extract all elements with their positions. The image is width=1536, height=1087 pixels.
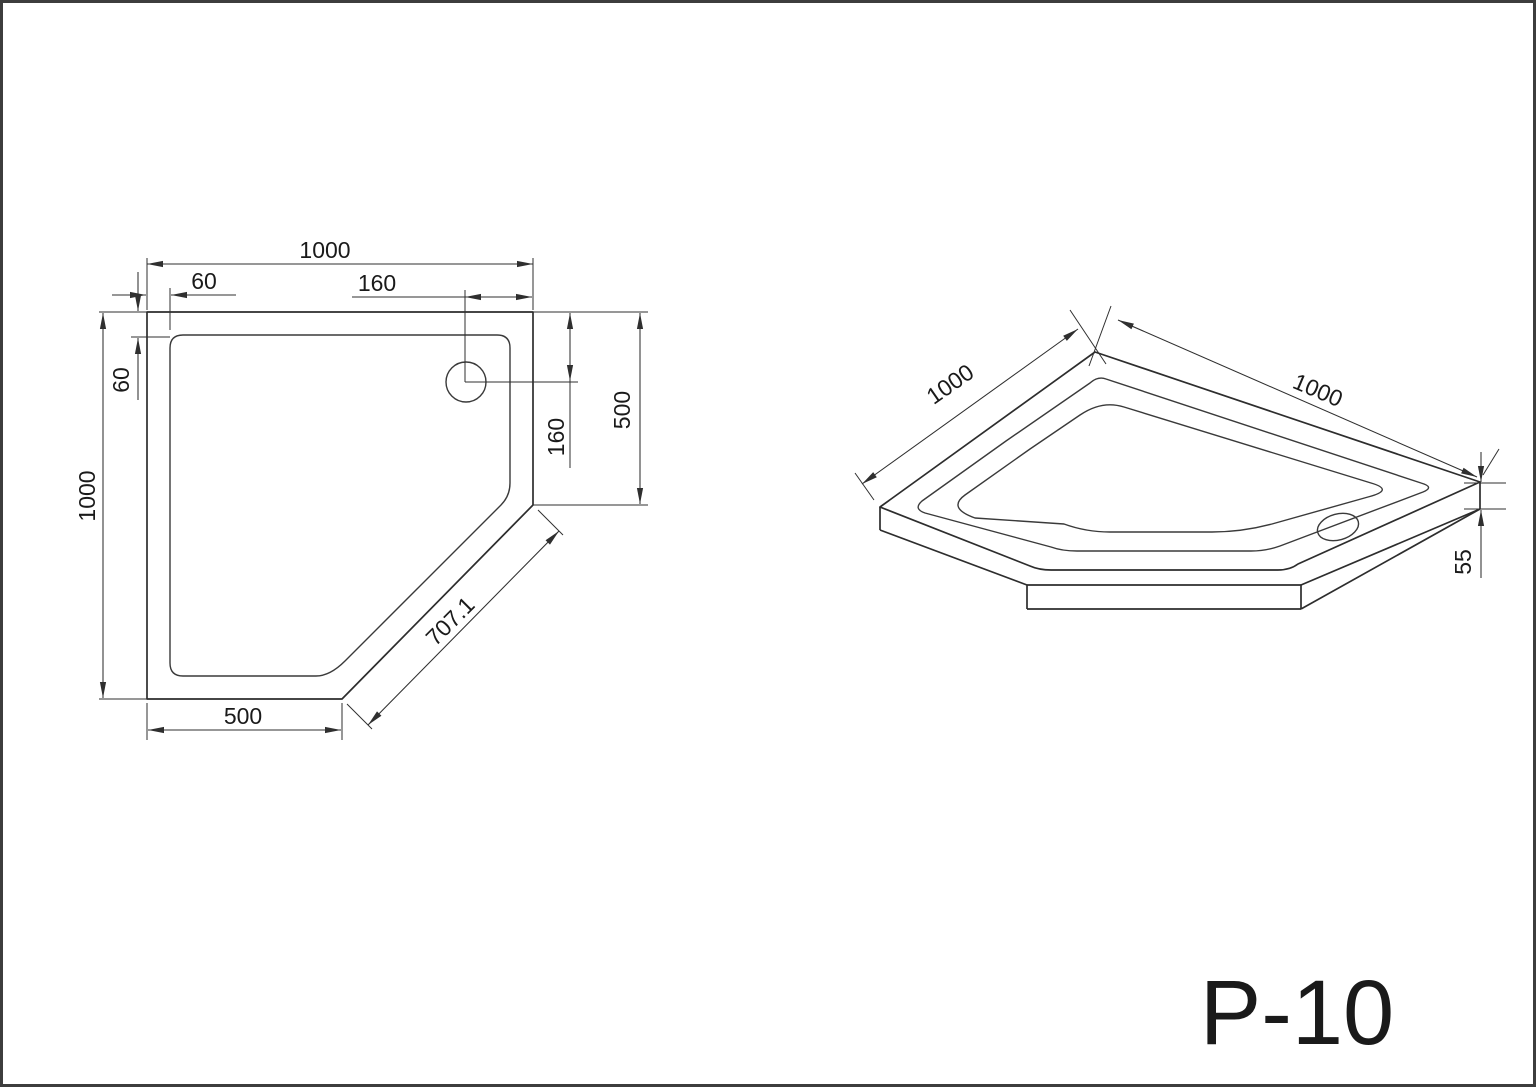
dim-plan-right-edge: 500	[609, 391, 635, 429]
dim-plan-rim-offset-top: 60	[191, 268, 217, 294]
ext-line	[1070, 310, 1106, 364]
dim-line-iso-right-edge	[1118, 320, 1477, 477]
drawing-sheet: 1000 60 160 60 160 500 1000 500 707.1	[0, 0, 1536, 1087]
iso-rim-outline	[918, 378, 1428, 551]
iso-view: 1000 1000 55	[855, 306, 1506, 609]
model-label: P-10	[1200, 962, 1394, 1064]
iso-drain-oval	[1314, 509, 1361, 545]
dim-iso-thickness: 55	[1450, 549, 1476, 575]
technical-drawing-canvas: 1000 60 160 60 160 500 1000 500 707.1	[0, 0, 1536, 1087]
plan-tray-outline	[147, 312, 533, 699]
dim-plan-bottom-edge: 500	[224, 703, 262, 729]
dim-iso-left-edge: 1000	[922, 359, 979, 410]
iso-basin-outline	[958, 405, 1382, 532]
dim-line-iso-left-edge	[862, 329, 1078, 484]
dim-plan-top-width: 1000	[299, 237, 350, 263]
dim-plan-rim-offset-left: 60	[108, 367, 134, 393]
dim-plan-drain-right: 160	[358, 270, 396, 296]
ext-line	[1483, 449, 1499, 475]
iso-edge-base-left	[880, 530, 1027, 585]
dim-plan-left-height: 1000	[74, 470, 100, 521]
dim-line-diagonal	[368, 531, 559, 725]
ext-line	[347, 704, 372, 729]
sheet-border	[2, 2, 1535, 1086]
plan-view: 1000 60 160 60 160 500 1000 500 707.1	[74, 237, 648, 740]
dim-plan-drain-down: 160	[543, 418, 569, 456]
dim-iso-right-edge: 1000	[1289, 368, 1346, 412]
